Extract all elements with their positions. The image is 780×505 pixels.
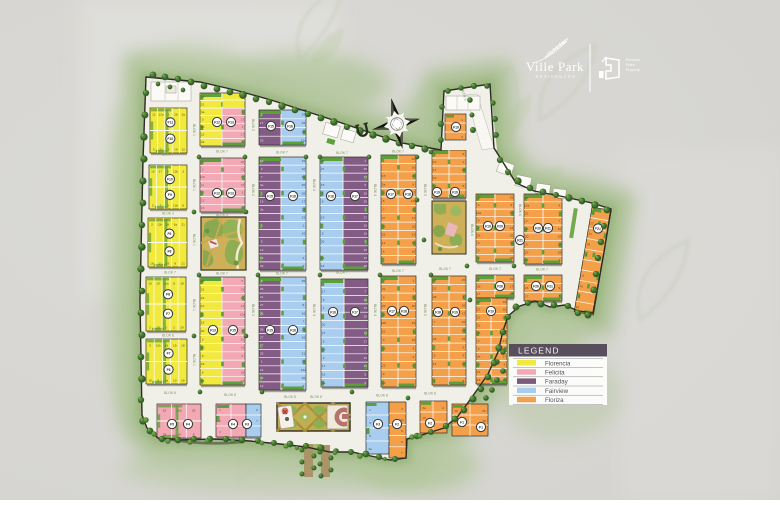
svg-text:23: 23 [241, 296, 245, 300]
svg-text:5: 5 [322, 232, 324, 236]
svg-text:BLOK 1: BLOK 1 [192, 354, 196, 366]
svg-text:F9: F9 [167, 232, 171, 236]
svg-text:3: 3 [461, 135, 463, 139]
svg-text:12b: 12b [173, 170, 178, 174]
svg-text:26: 26 [260, 287, 264, 291]
svg-text:28: 28 [433, 295, 437, 299]
svg-text:27: 27 [322, 331, 326, 335]
svg-text:5: 5 [193, 433, 195, 437]
svg-text:19: 19 [477, 300, 481, 304]
svg-text:6: 6 [401, 440, 403, 444]
svg-text:25: 25 [503, 378, 507, 382]
svg-text:19: 19 [454, 409, 458, 413]
svg-text:Felicita: Felicita [545, 370, 565, 377]
svg-text:BLOK 7: BLOK 7 [276, 151, 288, 155]
svg-text:9: 9 [504, 362, 506, 366]
svg-text:23: 23 [382, 381, 386, 385]
svg-text:Faraday: Faraday [545, 379, 569, 386]
svg-text:3a: 3a [165, 379, 169, 383]
svg-text:27: 27 [364, 364, 368, 368]
svg-text:F17: F17 [388, 192, 394, 196]
svg-text:3: 3 [242, 125, 244, 129]
svg-text:25: 25 [302, 279, 306, 283]
svg-text:28: 28 [181, 379, 185, 383]
svg-text:21: 21 [181, 262, 185, 266]
svg-text:8: 8 [242, 110, 244, 114]
svg-text:23: 23 [302, 216, 306, 220]
svg-text:3: 3 [322, 191, 324, 195]
svg-text:15: 15 [477, 362, 481, 366]
svg-text:21: 21 [302, 352, 306, 356]
svg-text:5: 5 [149, 344, 151, 348]
svg-text:2: 2 [149, 326, 151, 330]
svg-text:8: 8 [413, 364, 415, 368]
svg-text:6: 6 [434, 152, 436, 156]
svg-text:23: 23 [510, 226, 514, 230]
svg-text:9: 9 [463, 345, 465, 349]
svg-text:F16: F16 [328, 194, 334, 198]
svg-text:9: 9 [383, 372, 385, 376]
svg-text:BLOK 2: BLOK 2 [251, 184, 255, 196]
svg-text:F6: F6 [167, 368, 171, 372]
svg-text:1: 1 [369, 408, 371, 412]
svg-text:2: 2 [152, 204, 154, 208]
svg-text:F19: F19 [488, 309, 494, 313]
svg-text:9: 9 [413, 347, 415, 351]
svg-text:3a: 3a [174, 223, 178, 227]
svg-text:1: 1 [242, 362, 244, 366]
svg-text:1: 1 [219, 408, 221, 412]
svg-text:8: 8 [182, 204, 184, 208]
svg-text:BLOK 4: BLOK 4 [373, 184, 377, 196]
svg-text:21: 21 [181, 223, 185, 227]
svg-text:17: 17 [364, 175, 368, 179]
svg-text:12: 12 [433, 362, 437, 366]
svg-text:5: 5 [478, 277, 480, 281]
svg-text:10: 10 [462, 320, 466, 324]
svg-text:12a: 12a [176, 409, 181, 413]
svg-text:BLOK 7: BLOK 7 [392, 269, 404, 273]
svg-text:22: 22 [477, 315, 481, 319]
svg-text:11: 11 [201, 183, 204, 187]
svg-text:F7: F7 [167, 352, 171, 356]
svg-text:10: 10 [173, 379, 177, 383]
svg-text:10: 10 [201, 304, 205, 308]
svg-text:12a: 12a [476, 211, 481, 215]
svg-text:2: 2 [167, 170, 169, 174]
svg-text:BLOK 7: BLOK 7 [336, 271, 348, 275]
svg-text:F12: F12 [214, 120, 220, 124]
svg-text:26: 26 [382, 312, 386, 316]
svg-text:BLOK 7: BLOK 7 [439, 267, 451, 271]
svg-text:RESIDENCES: RESIDENCES [535, 74, 576, 79]
svg-text:5: 5 [401, 429, 403, 433]
svg-text:F19: F19 [452, 310, 458, 314]
svg-text:27: 27 [382, 216, 386, 220]
svg-text:22: 22 [201, 296, 205, 300]
svg-text:19: 19 [364, 224, 368, 228]
svg-text:18: 18 [412, 338, 416, 342]
svg-text:8: 8 [303, 303, 305, 307]
svg-text:18: 18 [302, 130, 306, 134]
svg-text:23: 23 [462, 329, 466, 333]
svg-text:22: 22 [412, 174, 416, 178]
svg-text:1: 1 [434, 379, 436, 383]
svg-text:2: 2 [165, 326, 167, 330]
svg-text:12b: 12b [157, 223, 162, 227]
svg-text:F20: F20 [535, 226, 541, 230]
svg-text:F13: F13 [228, 191, 234, 195]
svg-text:2: 2 [261, 167, 263, 171]
svg-text:2: 2 [413, 355, 415, 359]
svg-text:3: 3 [219, 430, 221, 434]
svg-text:20: 20 [482, 409, 486, 413]
svg-text:25: 25 [260, 352, 264, 356]
svg-text:BLOK 7: BLOK 7 [489, 267, 501, 271]
svg-text:26: 26 [260, 311, 264, 315]
svg-text:25: 25 [201, 279, 205, 283]
svg-text:7: 7 [434, 320, 436, 324]
svg-text:22: 22 [163, 409, 167, 413]
svg-text:BLOK 7: BLOK 7 [276, 272, 288, 276]
svg-text:22: 22 [241, 206, 245, 210]
svg-text:7: 7 [160, 204, 162, 208]
svg-text:5: 5 [323, 339, 325, 343]
svg-text:5: 5 [153, 148, 155, 152]
svg-text:F21: F21 [545, 226, 551, 230]
svg-text:5: 5 [365, 183, 367, 187]
svg-text:F10: F10 [167, 177, 173, 181]
svg-text:28: 28 [462, 303, 466, 307]
svg-text:19: 19 [525, 258, 529, 262]
svg-text:2: 2 [261, 191, 263, 195]
svg-text:17: 17 [260, 344, 264, 348]
svg-text:BLOK 1: BLOK 1 [192, 299, 196, 311]
svg-text:12a: 12a [240, 312, 245, 316]
svg-text:8: 8 [173, 282, 175, 286]
svg-text:17: 17 [364, 339, 368, 343]
svg-text:BLOK 8: BLOK 8 [310, 395, 322, 399]
svg-text:8: 8 [463, 379, 465, 383]
svg-text:12a: 12a [524, 204, 529, 208]
svg-text:10: 10 [558, 235, 562, 239]
svg-text:3: 3 [478, 339, 480, 343]
svg-text:5: 5 [242, 279, 244, 283]
svg-text:17: 17 [322, 364, 326, 368]
svg-text:29: 29 [364, 199, 368, 203]
svg-text:12: 12 [412, 216, 416, 220]
svg-text:F13: F13 [228, 120, 234, 124]
svg-text:16: 16 [241, 175, 245, 179]
svg-text:BLOK 7: BLOK 7 [216, 150, 228, 154]
svg-text:9: 9 [463, 152, 465, 156]
svg-text:BLOK 7: BLOK 7 [216, 272, 228, 276]
svg-text:BLOK 8: BLOK 8 [284, 395, 296, 399]
svg-text:16: 16 [260, 368, 264, 372]
svg-text:10: 10 [201, 160, 205, 164]
svg-text:11: 11 [412, 241, 415, 245]
svg-text:26: 26 [364, 298, 368, 302]
svg-text:21: 21 [201, 287, 205, 291]
svg-text:F8: F8 [167, 250, 171, 254]
svg-text:21: 21 [525, 227, 529, 231]
svg-text:BLOK 1: BLOK 1 [192, 234, 196, 246]
svg-text:5: 5 [383, 249, 385, 253]
svg-text:21: 21 [260, 295, 264, 299]
svg-text:17: 17 [322, 289, 326, 293]
svg-text:3: 3 [559, 258, 561, 262]
svg-text:21: 21 [159, 148, 163, 152]
svg-text:6: 6 [478, 203, 480, 207]
svg-text:12b: 12b [381, 321, 386, 325]
svg-text:17: 17 [462, 312, 466, 316]
svg-text:BLOK 4: BLOK 4 [312, 304, 316, 316]
svg-text:15: 15 [364, 356, 368, 360]
svg-text:15: 15 [364, 256, 368, 260]
svg-text:3: 3 [182, 170, 184, 174]
svg-text:F21: F21 [547, 284, 553, 288]
svg-text:15: 15 [321, 183, 325, 187]
svg-text:BLOK 1: BLOK 1 [192, 179, 196, 191]
svg-text:25: 25 [364, 248, 368, 252]
svg-text:18: 18 [364, 232, 368, 236]
svg-text:F18: F18 [401, 309, 407, 313]
svg-text:16: 16 [260, 256, 264, 260]
svg-text:9: 9 [559, 286, 561, 290]
svg-text:16: 16 [510, 249, 514, 253]
svg-text:F11: F11 [168, 121, 174, 125]
svg-text:9: 9 [526, 242, 528, 246]
svg-text:16: 16 [260, 159, 264, 163]
svg-text:2: 2 [526, 219, 528, 223]
svg-text:23: 23 [241, 167, 245, 171]
svg-text:3a: 3a [368, 447, 372, 451]
svg-text:20: 20 [322, 323, 326, 327]
svg-text:9: 9 [365, 207, 367, 211]
svg-text:11: 11 [382, 191, 385, 195]
svg-text:Floriza: Floriza [545, 397, 564, 404]
svg-text:28: 28 [260, 327, 264, 331]
svg-text:28: 28 [302, 191, 306, 195]
svg-text:8: 8 [174, 262, 176, 266]
svg-text:7: 7 [478, 226, 480, 230]
svg-text:22: 22 [241, 337, 245, 341]
svg-text:17: 17 [510, 211, 514, 215]
svg-text:6: 6 [413, 182, 415, 186]
svg-text:F1: F1 [460, 420, 464, 424]
svg-text:3: 3 [242, 191, 244, 195]
svg-text:18: 18 [150, 262, 154, 266]
svg-text:BLOK 7: BLOK 7 [164, 271, 176, 275]
svg-text:LEGEND: LEGEND [518, 346, 560, 356]
svg-text:BLOK 3: BLOK 3 [251, 304, 255, 316]
svg-text:12: 12 [260, 384, 264, 388]
svg-text:8: 8 [463, 184, 465, 188]
svg-text:19: 19 [173, 344, 177, 348]
svg-text:Fairview: Fairview [545, 388, 569, 395]
svg-text:19: 19 [151, 170, 155, 174]
svg-text:27: 27 [321, 167, 325, 171]
svg-text:BLOK 8: BLOK 8 [224, 393, 236, 397]
svg-text:23: 23 [382, 364, 386, 368]
svg-text:11: 11 [364, 331, 367, 335]
svg-text:18: 18 [321, 264, 325, 268]
svg-text:10: 10 [558, 227, 562, 231]
svg-text:12b: 12b [200, 175, 205, 179]
svg-text:F9: F9 [168, 193, 172, 197]
svg-text:28: 28 [174, 113, 178, 117]
svg-text:5: 5 [261, 112, 263, 116]
svg-text:26: 26 [302, 376, 306, 380]
svg-text:12a: 12a [163, 282, 168, 286]
svg-text:7: 7 [303, 319, 305, 323]
svg-text:9: 9 [478, 218, 480, 222]
svg-text:15: 15 [525, 286, 529, 290]
svg-text:3: 3 [369, 421, 371, 425]
svg-text:3a: 3a [382, 182, 386, 186]
svg-text:29: 29 [364, 191, 368, 195]
svg-text:BLOK 2: BLOK 2 [251, 119, 255, 131]
svg-text:2: 2 [323, 356, 325, 360]
svg-text:25: 25 [260, 139, 264, 143]
svg-text:F13: F13 [210, 328, 216, 332]
svg-text:29: 29 [180, 326, 184, 330]
svg-text:F18: F18 [405, 192, 411, 196]
svg-text:9: 9 [478, 241, 480, 245]
svg-text:3: 3 [413, 258, 415, 262]
svg-text:7: 7 [401, 451, 403, 455]
svg-text:25: 25 [192, 409, 196, 413]
svg-text:29: 29 [260, 264, 264, 268]
svg-text:9: 9 [559, 204, 561, 208]
svg-text:26: 26 [201, 140, 205, 144]
svg-text:F16: F16 [290, 328, 296, 332]
svg-text:8: 8 [202, 354, 204, 358]
svg-text:26: 26 [382, 224, 386, 228]
svg-text:29: 29 [241, 287, 245, 291]
svg-text:BLOK 3: BLOK 3 [216, 213, 228, 217]
svg-text:17: 17 [510, 284, 514, 288]
svg-text:25: 25 [462, 278, 466, 282]
svg-text:5: 5 [478, 347, 480, 351]
svg-text:3: 3 [261, 224, 263, 228]
svg-text:BLOK 1: BLOK 1 [192, 124, 196, 136]
svg-text:Ville Park: Ville Park [526, 59, 584, 74]
svg-text:BLOK 6: BLOK 6 [470, 224, 474, 236]
svg-text:15: 15 [558, 242, 562, 246]
svg-text:16: 16 [412, 166, 416, 170]
svg-text:1: 1 [365, 159, 367, 163]
svg-text:18: 18 [180, 282, 184, 286]
svg-text:9: 9 [365, 381, 367, 385]
svg-text:7: 7 [365, 348, 367, 352]
svg-text:16: 16 [503, 300, 507, 304]
svg-text:12b: 12b [173, 204, 178, 208]
svg-text:23: 23 [477, 323, 481, 327]
svg-text:25: 25 [302, 183, 306, 187]
svg-text:10: 10 [201, 346, 205, 350]
svg-text:3a: 3a [260, 207, 264, 211]
svg-text:BLOK 7: BLOK 7 [336, 151, 348, 155]
svg-text:10: 10 [412, 249, 416, 253]
svg-text:1: 1 [413, 330, 415, 334]
svg-text:1: 1 [303, 224, 305, 228]
svg-text:15: 15 [503, 308, 507, 312]
svg-text:20: 20 [302, 327, 306, 331]
svg-text:BLOK 8: BLOK 8 [424, 392, 436, 396]
svg-text:27: 27 [412, 295, 416, 299]
svg-text:21: 21 [321, 159, 325, 163]
svg-text:26: 26 [382, 304, 386, 308]
svg-text:F21: F21 [517, 238, 523, 242]
svg-text:10: 10 [433, 160, 437, 164]
svg-text:F12: F12 [214, 191, 220, 195]
svg-text:1: 1 [323, 306, 325, 310]
svg-text:17: 17 [433, 168, 437, 172]
svg-text:F16: F16 [330, 310, 336, 314]
svg-text:2: 2 [478, 256, 480, 260]
svg-text:9: 9 [303, 256, 305, 260]
svg-text:18: 18 [181, 344, 185, 348]
svg-text:10: 10 [422, 416, 426, 420]
svg-text:F2: F2 [395, 422, 399, 426]
svg-text:22: 22 [382, 330, 386, 334]
svg-text:22: 22 [201, 198, 205, 202]
svg-text:7: 7 [261, 175, 263, 179]
svg-text:BLOK 7: BLOK 7 [162, 153, 174, 157]
svg-text:2: 2 [168, 113, 170, 117]
svg-text:F16: F16 [287, 124, 293, 128]
svg-text:11: 11 [241, 140, 244, 144]
svg-text:F26: F26 [533, 284, 539, 288]
svg-text:Perdana: Perdana [626, 58, 640, 62]
svg-text:F16: F16 [290, 194, 296, 198]
svg-text:6: 6 [242, 354, 244, 358]
svg-text:5: 5 [157, 379, 159, 383]
svg-text:17: 17 [503, 339, 507, 343]
svg-text:25: 25 [364, 167, 368, 171]
svg-text:5: 5 [323, 298, 325, 302]
svg-text:23: 23 [525, 250, 529, 254]
svg-text:11: 11 [412, 208, 415, 212]
svg-text:22: 22 [525, 211, 529, 215]
svg-text:16: 16 [302, 336, 306, 340]
svg-text:23: 23 [382, 233, 386, 237]
svg-text:12a: 12a [159, 113, 164, 117]
svg-text:8: 8 [261, 279, 263, 283]
svg-text:17: 17 [159, 170, 163, 174]
svg-text:F20: F20 [497, 224, 503, 228]
svg-text:17: 17 [302, 207, 306, 211]
svg-text:28: 28 [166, 223, 170, 227]
svg-text:18: 18 [558, 250, 562, 254]
svg-text:F8: F8 [166, 293, 170, 297]
svg-text:16: 16 [241, 346, 245, 350]
svg-text:2: 2 [219, 419, 221, 423]
svg-text:3a: 3a [302, 175, 306, 179]
svg-text:3: 3 [413, 278, 415, 282]
svg-text:F2: F2 [428, 421, 432, 425]
svg-text:F17: F17 [389, 309, 395, 313]
svg-text:3: 3 [151, 223, 153, 227]
svg-text:12: 12 [241, 304, 245, 308]
svg-text:3: 3 [202, 117, 204, 121]
svg-text:BLOK 3: BLOK 3 [162, 212, 174, 216]
svg-text:6: 6 [303, 384, 305, 388]
svg-text:5: 5 [478, 249, 480, 253]
svg-text:29: 29 [201, 362, 205, 366]
svg-text:17: 17 [302, 199, 306, 203]
